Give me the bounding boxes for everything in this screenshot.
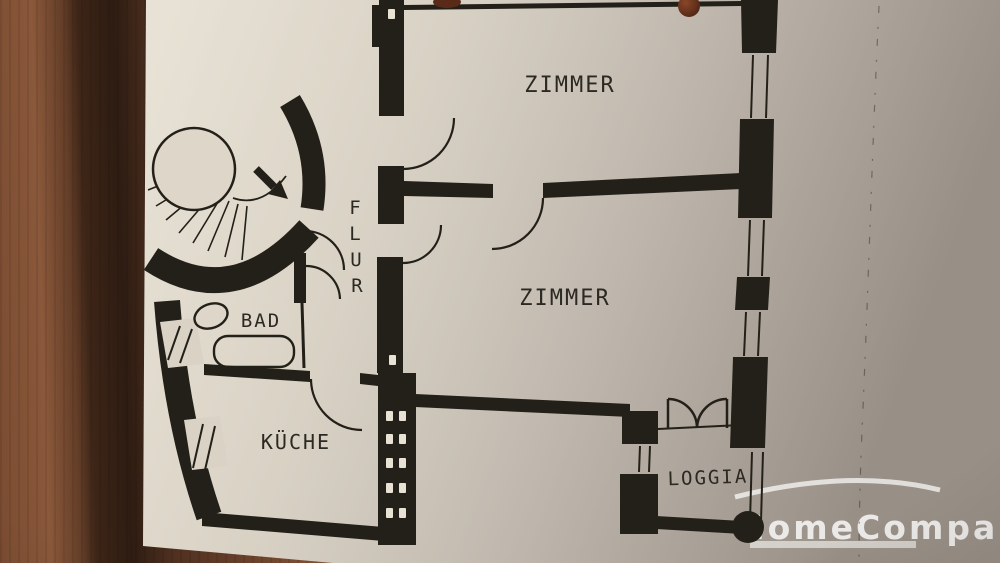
watermark-underline	[750, 541, 916, 548]
room-label-flur-l: L	[349, 223, 362, 245]
floor-plan-sheet: HomeCompany	[0, 0, 1000, 563]
loggia-corner-pillar	[732, 511, 764, 543]
room-label-flur-r: R	[351, 275, 364, 297]
room-label-zimmer-top: ZIMMER	[524, 73, 615, 98]
room-label-kueche: KÜCHE	[261, 430, 331, 454]
room-label-flur-u: U	[350, 249, 363, 271]
room-label-zimmer-middle: ZIMMER	[519, 286, 610, 311]
room-label-bad: BAD	[241, 310, 281, 332]
photo-of-floor-plan: HomeCompany	[0, 0, 1000, 563]
room-label-loggia: LOGGIA	[667, 466, 748, 491]
room-label-flur-f: F	[349, 197, 362, 219]
